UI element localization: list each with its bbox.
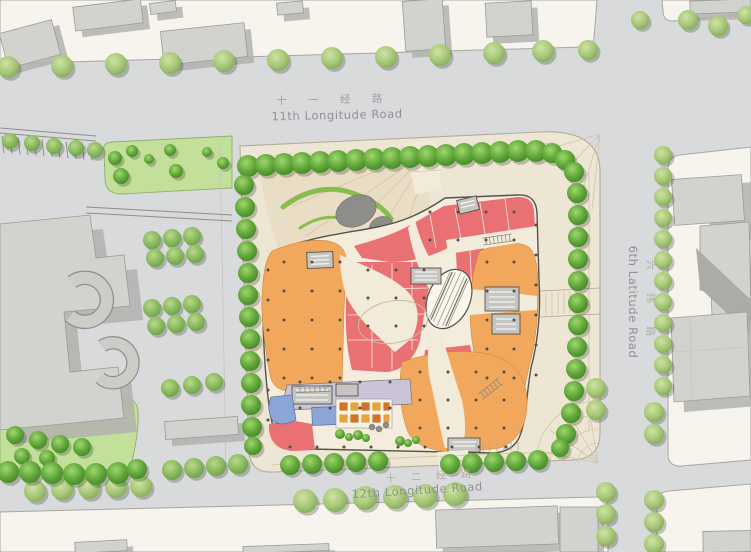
blue-unit-center (312, 407, 339, 426)
building-footprint-existing (435, 506, 564, 552)
road-label-6th-zh: 六 纬 路 (644, 260, 657, 346)
site-plan-page: 十 一 经 路 11th Longitude Road 十 二 经 路 12th… (0, 0, 751, 552)
road-label-11th-zh: 十 一 经 路 (276, 92, 391, 107)
site-plan-canvas: 十 一 经 路 11th Longitude Road 十 二 经 路 12th… (0, 0, 751, 552)
building-footprint-existing (703, 530, 751, 552)
road-label-6th-en: 6th Latitude Road (626, 246, 640, 359)
building-footprint-existing (485, 1, 539, 45)
anchor-store-west (262, 240, 347, 391)
service-band (269, 379, 412, 428)
blue-unit-west (269, 395, 296, 424)
road-label-11th-en: 11th Longitude Road (271, 107, 402, 124)
